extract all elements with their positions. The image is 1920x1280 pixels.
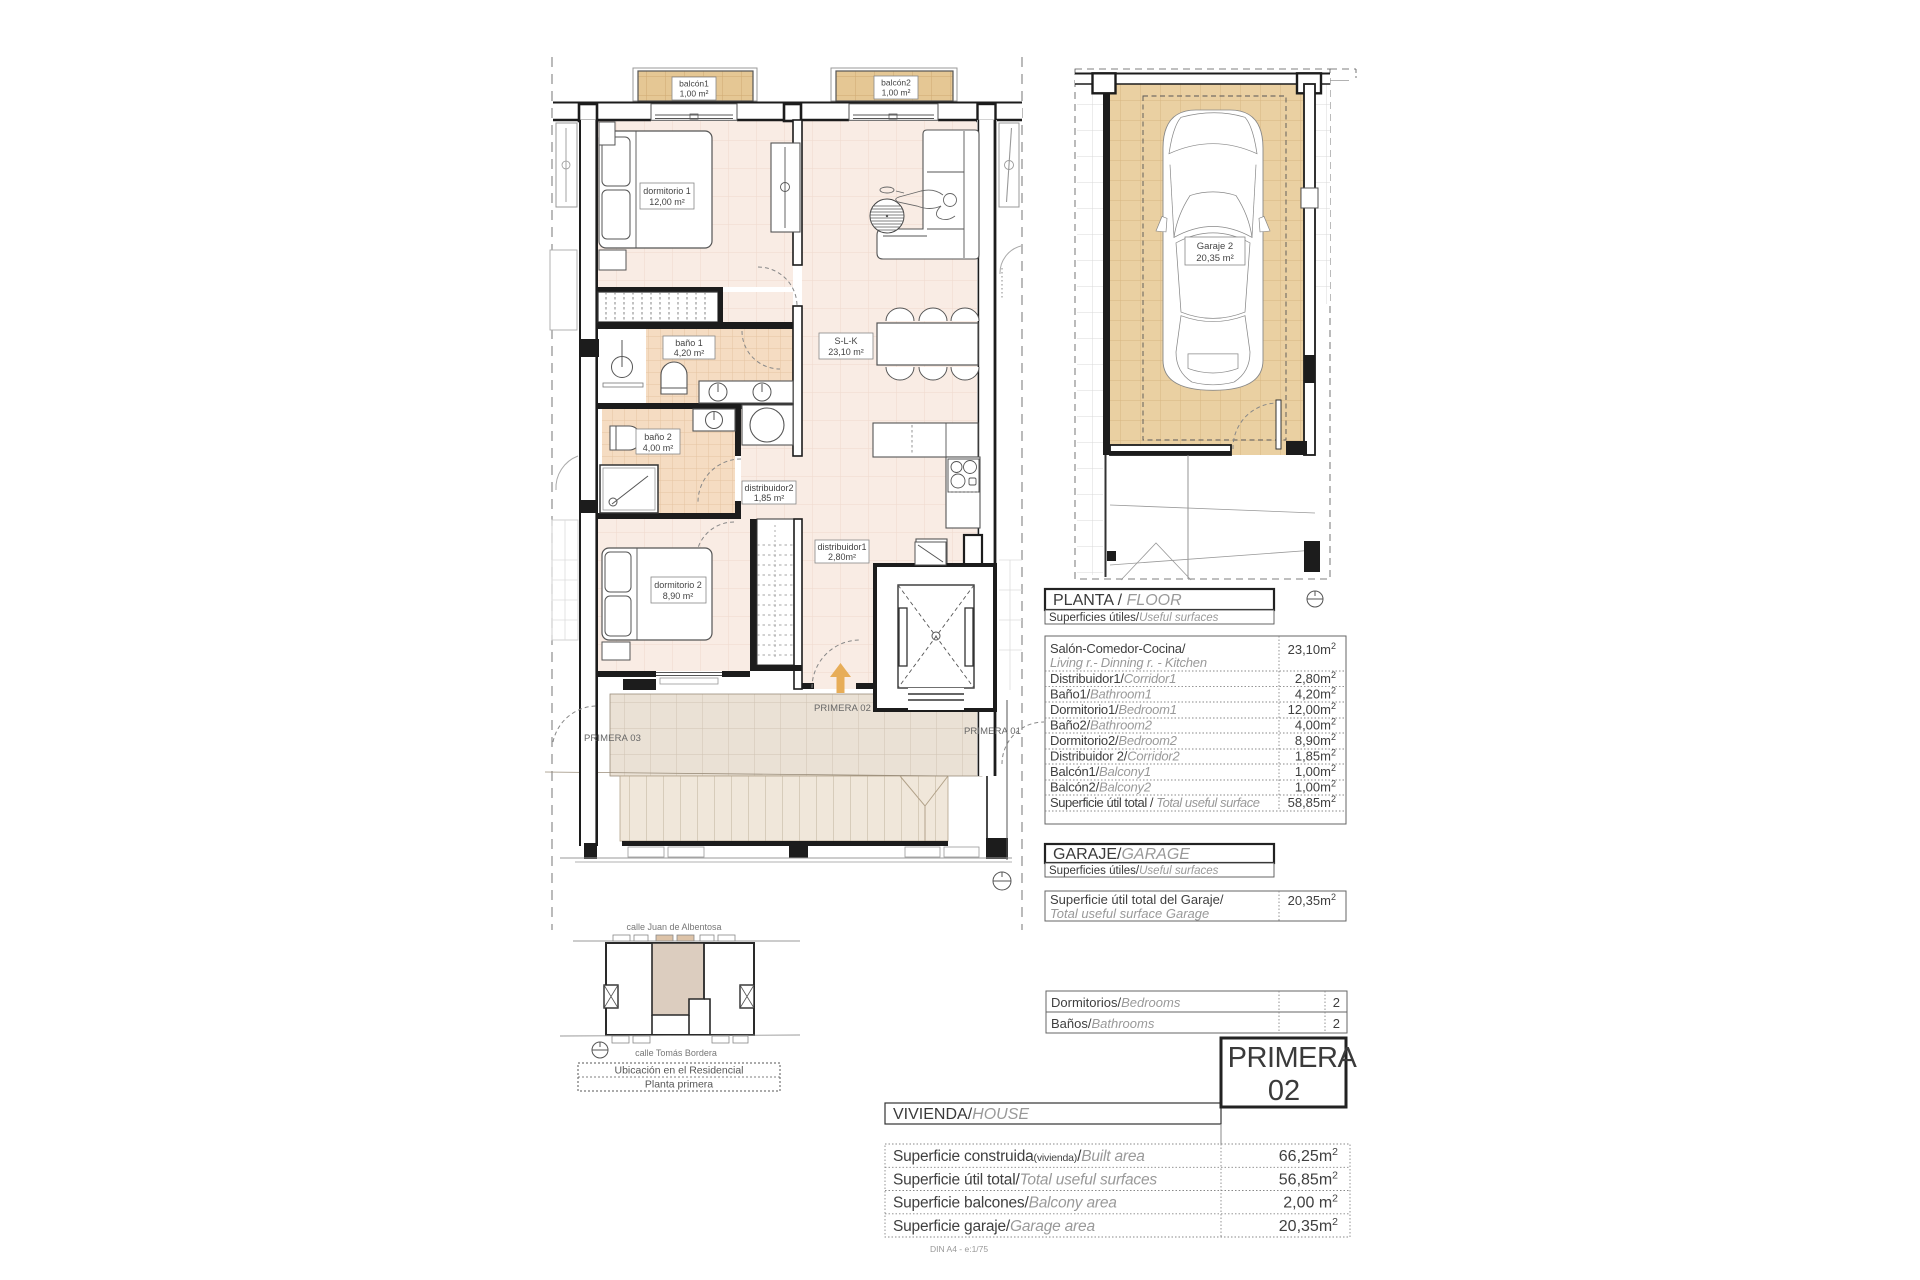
svg-text:DIN A4 - e:1/75: DIN A4 - e:1/75 [930,1244,988,1254]
svg-text:Garaje 2: Garaje 2 [1197,241,1233,252]
svg-text:20,35m2: 20,35m2 [1288,892,1336,908]
svg-text:4,20m2: 4,20m2 [1295,686,1336,702]
svg-text:56,85m2: 56,85m2 [1279,1170,1338,1189]
svg-text:balcón1: balcón1 [679,79,709,89]
svg-text:1,00 m²: 1,00 m² [882,88,911,98]
svg-text:12,00m2: 12,00m2 [1288,701,1336,717]
svg-text:GARAJE/GARAGE: GARAJE/GARAGE [1053,846,1190,863]
svg-text:Distribuidor1/Corridor1: Distribuidor1/Corridor1 [1050,671,1176,686]
svg-text:2,80m²: 2,80m² [828,552,856,562]
svg-text:23,10 m²: 23,10 m² [828,347,864,357]
svg-text:02: 02 [1268,1075,1300,1107]
svg-text:baño 2: baño 2 [644,432,672,442]
svg-text:Dormitorios/Bedrooms: Dormitorios/Bedrooms [1051,995,1181,1010]
svg-text:1,00 m²: 1,00 m² [680,89,709,99]
svg-text:Dormitorio2/Bedroom2: Dormitorio2/Bedroom2 [1050,733,1178,748]
svg-text:Total useful surface Garage: Total useful surface Garage [1050,906,1209,921]
svg-text:20,35 m²: 20,35 m² [1196,253,1234,264]
svg-text:66,25m2: 66,25m2 [1279,1146,1338,1165]
svg-text:1,00m2: 1,00m2 [1295,763,1336,779]
svg-text:Superficie balcones/Balcony ar: Superficie balcones/Balcony area [893,1195,1117,1212]
svg-text:PRIMERA 02: PRIMERA 02 [814,703,871,714]
svg-text:2: 2 [1333,1016,1340,1031]
svg-text:S-L-K: S-L-K [834,336,857,346]
svg-text:calle Tomás Bordera: calle Tomás Bordera [635,1048,717,1058]
svg-text:VIVIENDA/HOUSE: VIVIENDA/HOUSE [893,1106,1029,1123]
svg-text:1,85m2: 1,85m2 [1295,748,1336,764]
svg-text:Superficies útiles/Useful surf: Superficies útiles/Useful surfaces [1049,612,1219,624]
svg-text:PRIMERA 03: PRIMERA 03 [584,733,641,744]
svg-text:2,80m2: 2,80m2 [1295,670,1336,686]
svg-text:Superficie útil total / Total: Superficie útil total / Total useful sur… [1050,795,1260,810]
svg-text:Balcón2/Balcony2: Balcón2/Balcony2 [1050,780,1152,795]
svg-text:58,85m2: 58,85m2 [1288,794,1336,810]
svg-text:dormitorio 2: dormitorio 2 [654,580,702,590]
svg-text:4,00 m²: 4,00 m² [643,443,674,453]
svg-text:2,00 m2: 2,00 m2 [1283,1193,1338,1212]
svg-text:1,85 m²: 1,85 m² [754,493,785,503]
svg-text:distribuidor2: distribuidor2 [744,483,793,493]
svg-text:Superficie garaje/Garage area: Superficie garaje/Garage area [893,1218,1095,1235]
svg-text:Balcón1/Balcony1: Balcón1/Balcony1 [1050,764,1151,779]
svg-text:2: 2 [1333,995,1340,1010]
svg-text:Planta primera: Planta primera [645,1079,713,1091]
svg-text:Salón-Comedor-Cocina/: Salón-Comedor-Cocina/ [1050,641,1186,656]
svg-text:12,00 m²: 12,00 m² [649,197,685,207]
svg-text:PLANTA / FLOOR: PLANTA / FLOOR [1053,592,1182,609]
svg-text:PRIMERA: PRIMERA [1228,1042,1358,1074]
svg-text:4,00m2: 4,00m2 [1295,717,1336,733]
svg-text:Superficie útil total del Gara: Superficie útil total del Garaje/ [1050,892,1224,907]
svg-text:Distribuidor 2/Corridor2: Distribuidor 2/Corridor2 [1050,749,1181,764]
svg-text:8,90m2: 8,90m2 [1295,732,1336,748]
svg-text:4,20 m²: 4,20 m² [674,348,705,358]
svg-text:Superficies útiles/Useful surf: Superficies útiles/Useful surfaces [1049,865,1219,877]
svg-text:1,00m2: 1,00m2 [1295,779,1336,795]
svg-text:Baños/Bathrooms: Baños/Bathrooms [1051,1016,1155,1031]
svg-text:Living r.- Dinning r. - Kitche: Living r.- Dinning r. - Kitchen [1050,655,1207,670]
svg-text:balcón2: balcón2 [881,78,911,88]
svg-text:8,90 m²: 8,90 m² [663,591,694,601]
svg-text:calle Juan de Albentosa: calle Juan de Albentosa [626,922,721,932]
svg-text:PRIMERA 01: PRIMERA 01 [964,726,1021,737]
svg-text:Baño2/Bathroom2: Baño2/Bathroom2 [1050,718,1153,733]
svg-text:Superficie útil total/Total us: Superficie útil total/Total useful surfa… [893,1172,1157,1189]
svg-text:Superficie construida(vivienda: Superficie construida(vivienda)/Built ar… [893,1148,1145,1165]
svg-text:23,10m2: 23,10m2 [1288,641,1336,657]
svg-text:dormitorio 1: dormitorio 1 [643,186,691,196]
svg-text:baño 1: baño 1 [675,338,703,348]
svg-text:distribuidor1: distribuidor1 [817,542,866,552]
svg-text:20,35m2: 20,35m2 [1279,1216,1338,1235]
svg-text:Ubicación en el Residencial: Ubicación en el Residencial [615,1065,744,1077]
svg-text:Baño1/Bathroom1: Baño1/Bathroom1 [1050,687,1152,702]
svg-text:Dormitorio1/Bedroom1: Dormitorio1/Bedroom1 [1050,702,1177,717]
